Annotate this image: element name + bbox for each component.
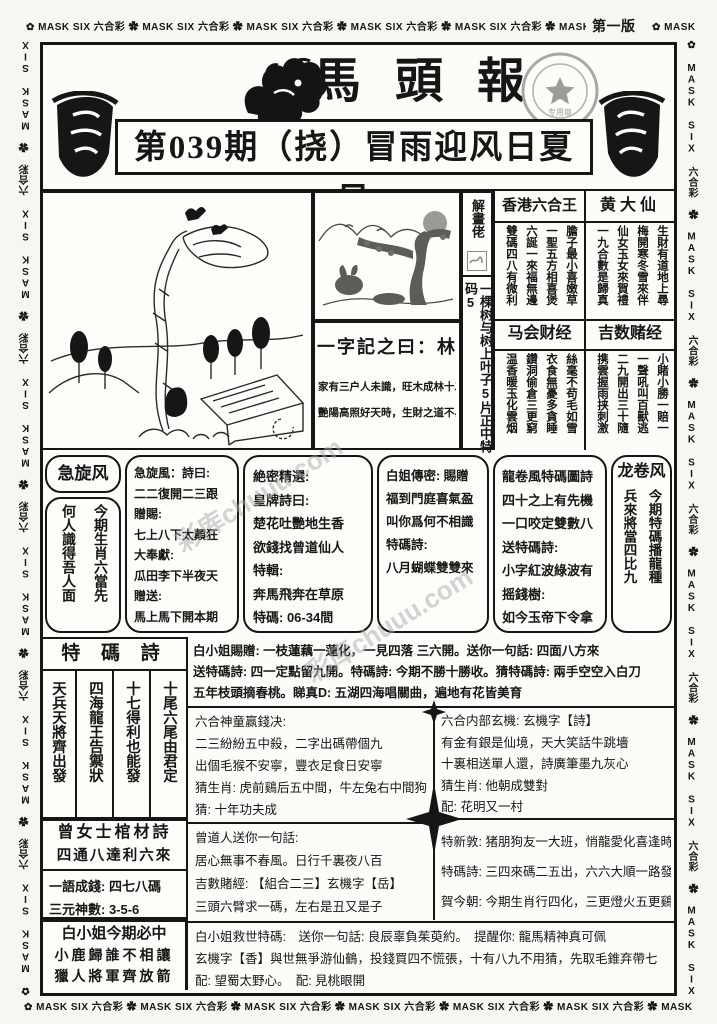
poem-line: 贈賜: [134,504,230,525]
poem-line: 福到門庭喜氣盈 [386,488,480,511]
poem-line: 八月蝴蝶雙雙來 [386,557,480,580]
verse-col: 一聖五方相喜煲 [541,225,561,317]
must-win-title: 白小姐今期必中 [43,922,185,946]
para-line: 玄機字【香】與世無爭游仙鶴，投錢買四不慌張，十有八九不用猜，先取毛錐弃帶七 [195,948,673,970]
para-line: 出個毛猴不安寧，豐衣足食日安寧 [195,755,427,777]
poem-line: 皇牌詩曰: [253,489,363,513]
para-line: 六合内部玄機: 玄機字【詩】 [441,711,671,733]
verse-col: 膽子最小喜嫩草 [561,225,581,317]
poem-line: 四十之上有先機 [502,489,598,513]
banner-left-icon [49,91,121,189]
poem-line: 送特碼詩: [502,536,598,560]
main-picture [43,191,313,450]
para-line: 猜生肖: 他朝成雙對 [441,776,671,798]
poem-line: 急旋風：詩曰: [134,463,230,484]
verse-col: 今期特碼播龍種 [642,489,667,627]
section-title-jockey: 马会财经 [495,319,584,349]
para-line: 吉數賭經: 【組合二三】玄機字【岳】 [195,873,427,896]
verse-wongtaisin: 生財有道地上尋 梅開寒冬雪來伴 仙女玉女來賀禮 一九合數是歸真 [590,225,672,317]
poem-line: 摇錢樹: [502,583,598,607]
verse-jockey: 絲毫不苟毛如雪 衣食無憂多貪睡 鑽洞偷倉三更窮 温香暖玉化雲烟 [499,353,581,447]
para-line: 猜生肖: 虎前鷄后五中間，牛左兔右中間狗 [195,777,427,799]
border-top-units: ✿ MASK SIX 六合彩 ✿ MASK SIX 六合彩 ✿ MASK SIX… [26,22,586,33]
verse-hk6: 膽子最小喜嫩草 一聖五方相喜煲 六誕一來福無邊 雙碼四八有微利 [499,225,581,317]
whirlwind-poem: 急旋風：詩曰: 二二復開二三跟 贈賜: 七上八下太顛狂 大奉獻: 瓜田李下半夜天… [125,455,239,633]
border-top: ✿ MASK SIX 六合彩 ✿ MASK SIX 六合彩 ✿ MASK SIX… [26,18,586,38]
para-line: 二三紛紛五中殺，二字出碼帶個九 [195,733,427,755]
right-sections: 香港六合王 黄大仙 膽子最小喜嫩草 一聖五方相喜煲 六誕一來福無邊 雙碼四八有微… [493,191,674,450]
main-frame: 馬頭報 专用章 第039期（挠）冒雨迎风日夏日 [40,42,677,996]
must-win-box: 白小姐今期必中 小鹿歸誰不相讓 獵人將軍齊放箭 [43,919,188,990]
special-poem-box: 特 碼 詩 十尾六尾由君定 十七得利也能發 四海龍王告禦狀 天兵天將齊出發 [43,637,188,819]
coffin-title: 曾女士棺材詩 [43,821,186,845]
whirlwind-title-box: 急旋风 [45,455,121,493]
tornado-verses: 今期特碼播龍種 兵來將當四比九 [617,489,667,627]
verse-col: 天兵天將齊出發 [40,671,77,819]
section-title-lucky: 吉数赌经 [586,319,674,349]
verse-col: 仙女玉女來賀禮 [612,225,632,317]
sister-white-secret: 白姐傳密: 賜贈 福到門庭喜氣盈 叫你爲何不相識 特碼詩: 八月蝴蝶雙雙來 [377,455,489,633]
verse-col: 十尾六尾由君定 [151,671,186,819]
word-of-issue-box: 一字記之曰：林 家有三户人未識，旺木成林十二月 艷陽高照好天時，生財之道不易尋 [313,321,461,450]
poem-line: 奔馬飛奔在草原 [253,583,363,607]
verse-col: 携雲握雨挟刺激 [592,353,612,447]
prodigy-block: 六合神童赢錢决: 二三紛紛五中殺，二字出碼帶個九 出個毛猴不安寧，豐衣足食日安寧… [195,711,427,821]
para-line: 白小姐救世特碼: 送你一句話: 良辰辜負茱萸約。 提醒你: 龍馬精神真可佩 [195,926,673,948]
issue-headline: 第039期（挠）冒雨迎风日夏日 [115,119,593,175]
para-line: 特新敦: 猪朋狗友一大班，悄龍愛化喜逢時 [441,827,671,857]
tornado-title: 龙卷风 [613,457,670,487]
sister-white-gift: 白小姐賜贈: 一枝蓮藕一蓮化，一見四落 三六開。送你一句話: 四面八方來 送特碼… [193,641,674,704]
para-line: 曾道人送你一句話: [195,827,427,850]
para-line: 特碼詩: 三四來碼二五出，六六大順一路發 [441,857,671,887]
poem-line: 楚花吐艷地生香 [253,512,363,536]
divider [188,822,431,824]
poem-line: 七上八下太顛狂 [134,525,230,546]
verse-lucky: 小賭小勝一賠一 一聲吼叫百獸逃 二九開出三十隨 携雲握雨挟刺激 [590,353,672,447]
verse-col: 一聲吼叫百獸逃 [632,353,652,447]
verse-col: 梅開寒冬雪來伴 [632,225,652,317]
zeng-daoren-block: 曾道人送你一句話: 居心無事不春風。日行千裏夜八百 吉數賭經: 【組合二三】玄機… [195,827,427,919]
para-line: 白小姐賜贈: 一枝蓮藕一蓮化，一見四落 三六開。送你一句話: 四面八方來 [193,641,674,662]
poem-line: 大奉獻: [134,545,230,566]
verse-col: 鑽洞偷倉三更窮 [521,353,541,447]
poem-line: 贈送: [134,586,230,607]
coffin-poem-box: 曾女士棺材詩 四通八達利六來 一語成錢: 四七八碼 三元神數: 3-5-6 [43,819,188,919]
poem-line: 特輯: [253,559,363,583]
verse-col: 小賭小勝一賠一 [652,353,672,447]
whirlwind-verses: 今期生肖六當先 何人識得吾人面 [51,504,115,628]
verse-col: 四海龍王告禦狀 [77,671,114,819]
border-top-tail: ✿ MASK SIX 六合彩 [652,18,696,38]
verse-col: 何人識得吾人面 [51,504,83,628]
edition-label: 第一版 [592,16,652,38]
verse-col: 衣食無憂多貪睡 [541,353,561,447]
border-left: ✿ MASK SIX 六合彩 ✿ MASK SIX 六合彩 ✿ MASK SIX… [18,40,34,996]
para-line: 三頭六臂求一碼，左右是丑又是子 [195,896,427,919]
para-line: 猜: 十年功夫成 [195,799,427,821]
whirlwind-verse-box: 今期生肖六當先 何人識得吾人面 [45,497,121,633]
border-right: ✿ MASK SIX 六合彩 ✿ MASK SIX 六合彩 ✿ MASK SIX… [683,40,699,996]
para-line: 配: 望蜀太野心。 配: 見桃眼開 [195,970,673,992]
verse-col: 生財有道地上尋 [652,225,672,317]
verse-col: 今期生肖六當先 [83,504,115,628]
para-line: 賀今朝: 今期生肖行四化，三更燈火五更鷄 [441,887,671,917]
stamp-label-glyphs: 专用章 [548,107,572,117]
special-poem-title: 特 碼 詩 [43,639,186,671]
strip-caption: 一棵树与树上叶子5片正中特码5 [463,282,493,458]
tornado-chart-poem: 龍卷風特碼圖詩 四十之上有先機 一口咬定雙數八 送特碼詩: 小字紅波綠波有 摇錢… [493,455,607,633]
poem-line: 絶密精選: [253,465,363,489]
banner-right-icon [596,91,668,189]
poem-line: 欲錢找曾道仙人 [253,536,363,560]
para-line: 一語成錢: 四七八碼 [49,875,180,898]
verse-col: 二九開出三十隨 [612,353,632,447]
para-line: 十裏相送單人還，詩廣筆墨九灰心 [441,754,671,776]
insider-block: 六合内部玄機: 玄機字【詩】 有金有銀是仙境，天大笑話牛跳墻 十裏相送單人還，詩… [441,711,671,819]
border-bottom: ✿ MASK SIX 六合彩 ✿ MASK SIX 六合彩 ✿ MASK SIX… [24,998,696,1018]
word-line: 家有三户人未識，旺木成林十二月 [318,375,456,401]
poem-line: 特碼詩: [386,534,480,557]
para-line: 配: 花明又一村 [441,797,671,819]
verse-col: 温香暖玉化雲烟 [501,353,521,447]
side-strip: 解畫佬 一棵树与树上叶子5片正中特码5 [461,191,493,450]
coffin-line: 四通八達利六來 [43,845,186,867]
verse-col: 十七得利也能發 [114,671,151,819]
poem-line: 叫你爲何不相識 [386,511,480,534]
strip-header: 解畫佬 [470,199,484,247]
landscape-picture [313,191,461,321]
poem-line: 白姐傳密: 賜贈 [386,465,480,488]
top-secret-selection: 絶密精選: 皇牌詩曰: 楚花吐艷地生香 欲錢找曾道仙人 特輯: 奔馬飛奔在草原 … [243,455,373,633]
poem-line: 小字紅波綠波有 [502,559,598,583]
section-title-wongtaisin: 黄大仙 [586,191,674,221]
poem-line: 如今玉帝下令拿 [502,606,598,630]
para-line: 居心無事不春風。日行千裏夜八百 [195,850,427,873]
poem-line: 龍卷風特碼圖詩 [502,465,598,489]
divider [188,921,674,923]
para-line: 送特碼詩: 四一定點留九開。特碼詩: 今期不勝十勝收。猜特碼詩: 兩手空空入白刀 [193,662,674,683]
salvation-block: 白小姐救世特碼: 送你一句話: 良辰辜負茱萸約。 提醒你: 龍馬精神真可佩 玄機… [195,926,673,992]
verse-col: 雙碼四八有微利 [501,225,521,317]
strip-thumb-icon [467,251,487,271]
tornado-box: 龙卷风 今期特碼播龍種 兵來將當四比九 [611,455,672,633]
para-line: 三元神數: 3-5-6 [49,898,180,921]
poem-line: 二二復開二三跟 [134,484,230,505]
newspaper-page: ✿ MASK SIX 六合彩 ✿ MASK SIX 六合彩 ✿ MASK SIX… [0,0,717,1024]
divider [436,818,674,820]
word-title: 一字記之曰：林 [315,333,459,359]
word-line: 艷陽高照好天時，生財之道不易尋 [318,401,456,427]
special-poem-cols: 十尾六尾由君定 十七得利也能發 四海龍王告禦狀 天兵天將齊出發 [43,671,186,819]
para-line: 有金有銀是仙境，天大笑話牛跳墻 [441,733,671,755]
poem-line: 瓜田李下半夜天 [134,566,230,587]
poem-line: 特碼: 06-34間 [253,606,363,630]
poem-line: 馬上馬下開本期 [134,607,230,628]
texin-block: 特新敦: 猪朋狗友一大班，悄龍愛化喜逢時 特碼詩: 三四來碼二五出，六六大順一路… [441,827,671,917]
para-line: 小鹿歸誰不相讓 [43,946,185,967]
verse-col: 一九合數是歸真 [592,225,612,317]
poem-line: 一口咬定雙數八 [502,512,598,536]
para-line: 獵人將軍齊放箭 [43,967,185,988]
verse-col: 兵來將當四比九 [617,489,642,627]
section-title-hk6: 香港六合王 [495,191,584,221]
verse-col: 絲毫不苟毛如雪 [561,353,581,447]
verse-col: 六誕一來福無邊 [521,225,541,317]
para-line: 六合神童赢錢决: [195,711,427,733]
